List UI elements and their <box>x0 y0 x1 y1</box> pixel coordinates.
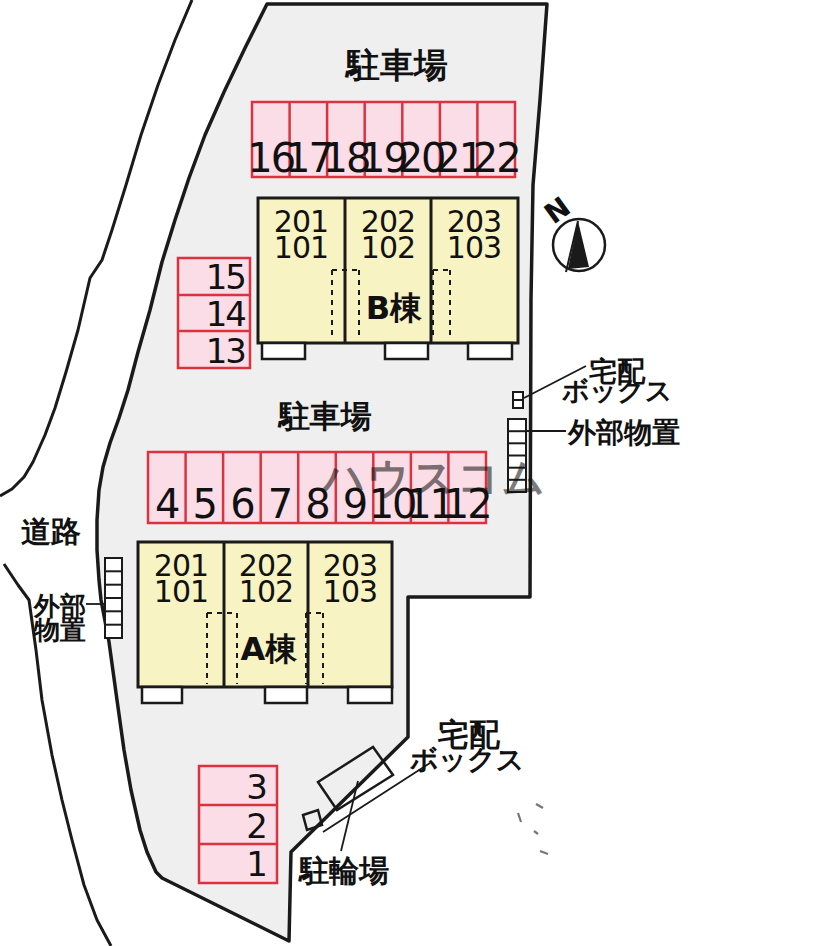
stall-number: 15 <box>206 257 245 297</box>
unit-number: 101 <box>154 574 208 609</box>
unit-number: 102 <box>361 230 415 265</box>
road-label: 道路 <box>21 514 81 549</box>
porch <box>385 343 428 359</box>
porch <box>262 343 305 359</box>
parking-area-mid-label: 駐車場 <box>278 398 372 434</box>
compass-north-label: N <box>538 190 576 230</box>
stall-number: 3 <box>246 767 266 807</box>
stall-number: 13 <box>206 331 245 371</box>
bicycle-parking-label: 駐輪場 <box>298 853 389 888</box>
stall-number: 5 <box>193 481 216 527</box>
site-plan-svg: 16 17 18 19 20 21 22 15 14 13 201 101 <box>0 0 839 946</box>
stall-number: 2 <box>246 806 266 846</box>
unit-number: 103 <box>447 230 501 265</box>
delivery-box-bottom-label-2: ボックス <box>410 743 525 776</box>
storage-left <box>105 558 122 638</box>
stall-number: 4 <box>155 481 179 527</box>
delivery-box-right-label-2: ボックス <box>562 375 673 406</box>
compass-needle <box>568 221 589 269</box>
delivery-box-right <box>513 392 523 408</box>
building-b-name: B棟 <box>366 289 422 327</box>
parking-area-top-label: 駐車場 <box>344 45 448 85</box>
storage-right-label: 外部物置 <box>567 416 680 449</box>
stall-number: 1 <box>246 844 266 884</box>
watermark-text: ハウスコム <box>319 453 547 502</box>
stall-number: 14 <box>206 294 246 334</box>
porch <box>265 687 307 703</box>
unit-number: 101 <box>274 230 328 265</box>
porch <box>348 687 392 703</box>
site-plan-page: 16 17 18 19 20 21 22 15 14 13 201 101 <box>0 0 839 946</box>
building-a-porches <box>142 687 392 703</box>
building-b-porches <box>262 343 512 359</box>
stall-number: 6 <box>230 481 253 527</box>
unit-number: 102 <box>239 574 293 609</box>
building-a-name: A棟 <box>241 630 298 668</box>
porch <box>142 687 182 703</box>
stall-number: 7 <box>268 481 291 527</box>
unit-number: 103 <box>323 574 377 609</box>
stall-number: 22 <box>473 135 520 181</box>
watermark-remnant-marks <box>518 804 548 854</box>
compass: N <box>538 190 605 272</box>
storage-left-label-2: 物置 <box>33 615 86 645</box>
porch <box>468 343 512 359</box>
